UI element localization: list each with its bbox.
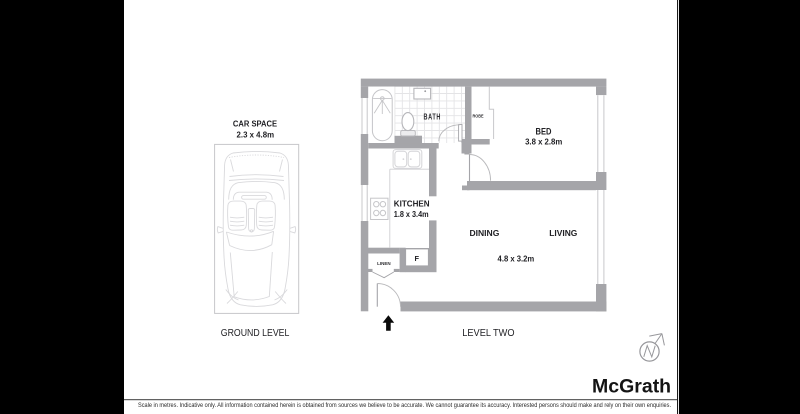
svg-text:F: F <box>415 254 420 263</box>
svg-text:DINING: DINING <box>469 228 499 238</box>
svg-text:4.8 x 3.2m: 4.8 x 3.2m <box>498 255 535 264</box>
svg-text:BATH: BATH <box>424 112 442 121</box>
svg-text:BED: BED <box>536 127 552 137</box>
svg-text:GROUND LEVEL: GROUND LEVEL <box>221 328 290 339</box>
svg-text:McGrath: McGrath <box>592 376 671 398</box>
svg-text:2.3 x 4.8m: 2.3 x 4.8m <box>237 131 275 140</box>
svg-text:KITCHEN: KITCHEN <box>394 199 430 209</box>
svg-text:LINEN: LINEN <box>377 261 391 266</box>
svg-text:LEVEL TWO: LEVEL TWO <box>462 328 514 339</box>
svg-text:3.8 x 2.8m: 3.8 x 2.8m <box>525 137 562 146</box>
svg-text:1.8 x 3.4m: 1.8 x 3.4m <box>394 210 429 219</box>
svg-text:CAR SPACE: CAR SPACE <box>233 119 277 129</box>
svg-text:LIVING: LIVING <box>549 228 577 238</box>
svg-text:ROBE: ROBE <box>473 113 485 119</box>
svg-text:Scale in metres. Indicative on: Scale in metres. Indicative only. All in… <box>138 402 671 409</box>
